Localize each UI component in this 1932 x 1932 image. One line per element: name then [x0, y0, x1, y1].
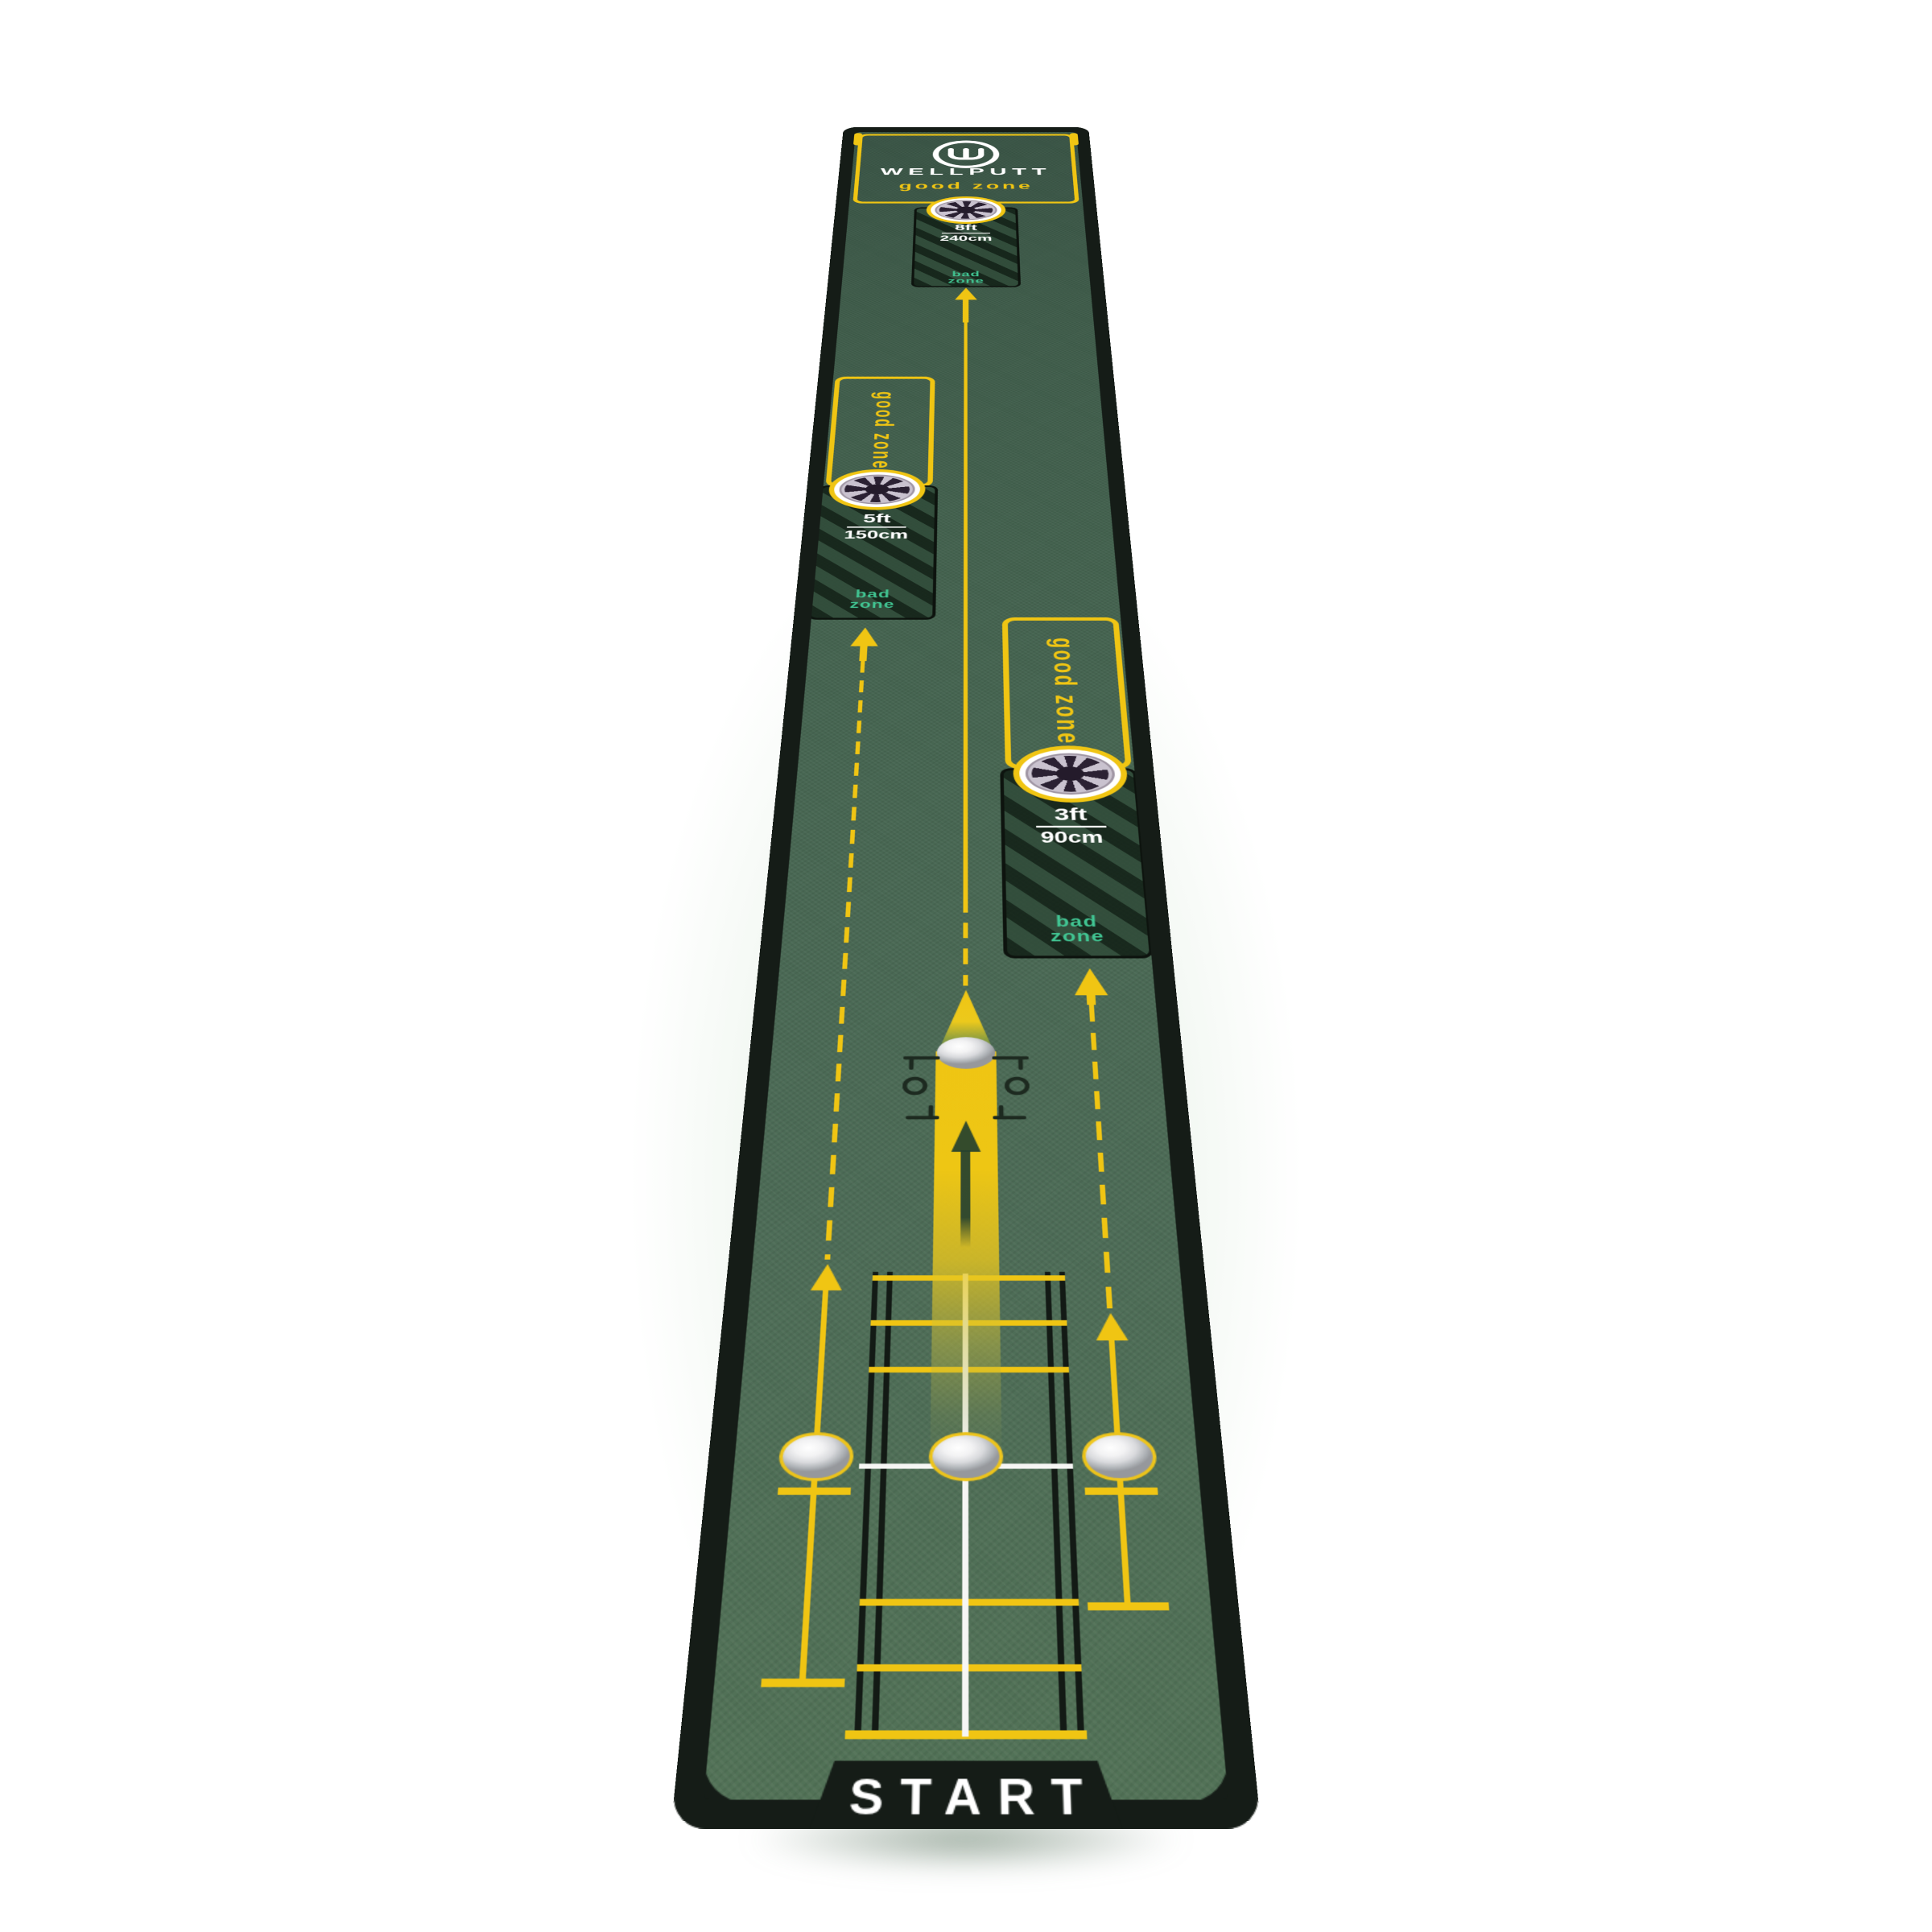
edge-tab-left: [853, 133, 862, 145]
start-tab: START: [810, 1761, 1123, 1829]
distance-label-5ft: 5ft 150cm: [815, 512, 938, 540]
edge-tab-right: [1070, 133, 1079, 145]
golf-ball: [928, 1432, 1003, 1481]
putter-gate-icon: [902, 1054, 940, 1122]
distance-label-8ft: 8ft 240cm: [916, 223, 1016, 242]
dark-arrow-shaft: [960, 1150, 970, 1248]
distance-label-3ft: 3ft 90cm: [1001, 806, 1143, 845]
putter-gate-icon: [993, 1054, 1031, 1122]
right-arrowhead-icon: [1095, 1313, 1129, 1340]
distance-cm: 90cm: [1001, 829, 1143, 846]
bad-zone-label-3ft: bad zone: [1038, 914, 1116, 944]
tee-bar-bottom: [761, 1678, 844, 1687]
tee-bar-bottom: [1088, 1602, 1169, 1610]
bad-zone-label-5ft: bad zone: [840, 589, 905, 610]
distance-feet: 5ft: [816, 512, 938, 525]
tee-bar: [778, 1488, 851, 1495]
grid-yellow-rung: [857, 1664, 1081, 1671]
tee-bar: [1085, 1488, 1158, 1495]
center-dashed-guide-line: [963, 898, 968, 986]
distance-divider: [942, 233, 990, 233]
distance-feet: 3ft: [1001, 806, 1141, 824]
up-arrow-shaft-5ft: [859, 646, 867, 662]
start-label: START: [832, 1763, 1100, 1827]
hole-cup-icon-3ft: [1013, 745, 1129, 802]
stroke-beam: [930, 1051, 1001, 1463]
cup-center: [956, 207, 976, 214]
distance-cm: 150cm: [815, 529, 937, 541]
distance-feet: 8ft: [916, 223, 1015, 232]
up-arrow-icon-5ft: [850, 628, 879, 646]
brand-wordmark: WELLPUTT: [839, 167, 1094, 177]
distance-divider: [847, 526, 906, 528]
up-arrow-icon-8ft: [955, 287, 976, 299]
center-guide-line: [964, 322, 968, 898]
good-zone-label-3ft: good zone: [1046, 638, 1087, 745]
up-arrow-shaft-3ft: [1087, 994, 1096, 1005]
left-arrowhead-icon: [811, 1264, 844, 1290]
good-zone-label-8ft: good zone: [837, 180, 1095, 191]
grid-yellow-rung: [860, 1599, 1079, 1606]
hole-cup-icon-5ft: [828, 469, 926, 510]
up-arrow-icon-3ft: [1073, 968, 1108, 996]
up-arrow-shaft-8ft: [963, 299, 968, 323]
good-zone-label-5ft: good zone: [866, 391, 901, 469]
bad-zone-label-8ft: bad zone: [940, 270, 992, 284]
hole-cup: [935, 200, 997, 220]
cup-center: [1056, 766, 1085, 781]
wellputt-logo-icon: [925, 140, 1007, 169]
distance-divider: [1036, 825, 1106, 827]
hole-cup-icon-8ft: [926, 196, 1005, 224]
golf-ball-rolling: [936, 1037, 995, 1068]
distance-cm: 240cm: [916, 234, 1016, 242]
product-image: WELLPUTT good zone 8ft 240cm bad zone go…: [0, 0, 1932, 1932]
hole-cup: [1025, 753, 1117, 795]
